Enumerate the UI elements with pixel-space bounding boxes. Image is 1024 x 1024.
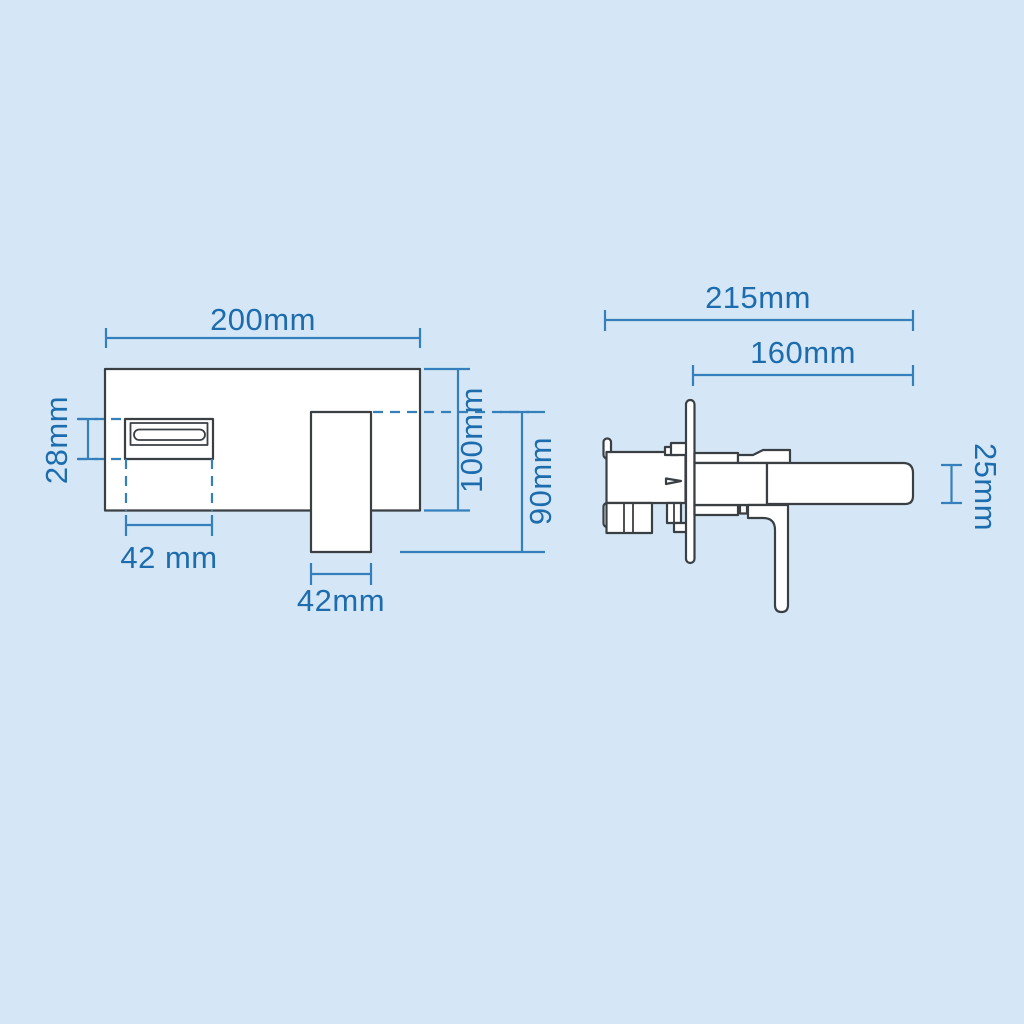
- escutcheon-tab: [740, 505, 747, 514]
- escutcheon-top-flange: [695, 453, 739, 463]
- valve-body: [607, 452, 686, 503]
- technical-drawing-canvas: 200mm 28mm 42 mm 42mm: [0, 0, 1024, 1024]
- dimension-label: 42 mm: [120, 540, 217, 575]
- wall-plate: [686, 400, 695, 563]
- dimension-label: 215mm: [705, 280, 811, 315]
- pipe-block: [607, 503, 653, 533]
- dimension-label: 90mm: [523, 437, 558, 525]
- dimension-label: 100mm: [454, 387, 489, 493]
- dimension-label: 25mm: [968, 443, 1003, 531]
- dimension-label: 28mm: [39, 396, 74, 484]
- handle-front: [311, 412, 371, 552]
- body-top-step: [671, 443, 687, 455]
- drawing-background: [0, 0, 1024, 1024]
- escutcheon-bottom-flange: [695, 505, 739, 515]
- cartridge-housing: [695, 463, 768, 505]
- spout-side: [767, 463, 913, 504]
- dimension-label: 200mm: [210, 302, 316, 337]
- dimension-label: 42mm: [297, 583, 385, 618]
- dimension-label: 160mm: [750, 335, 856, 370]
